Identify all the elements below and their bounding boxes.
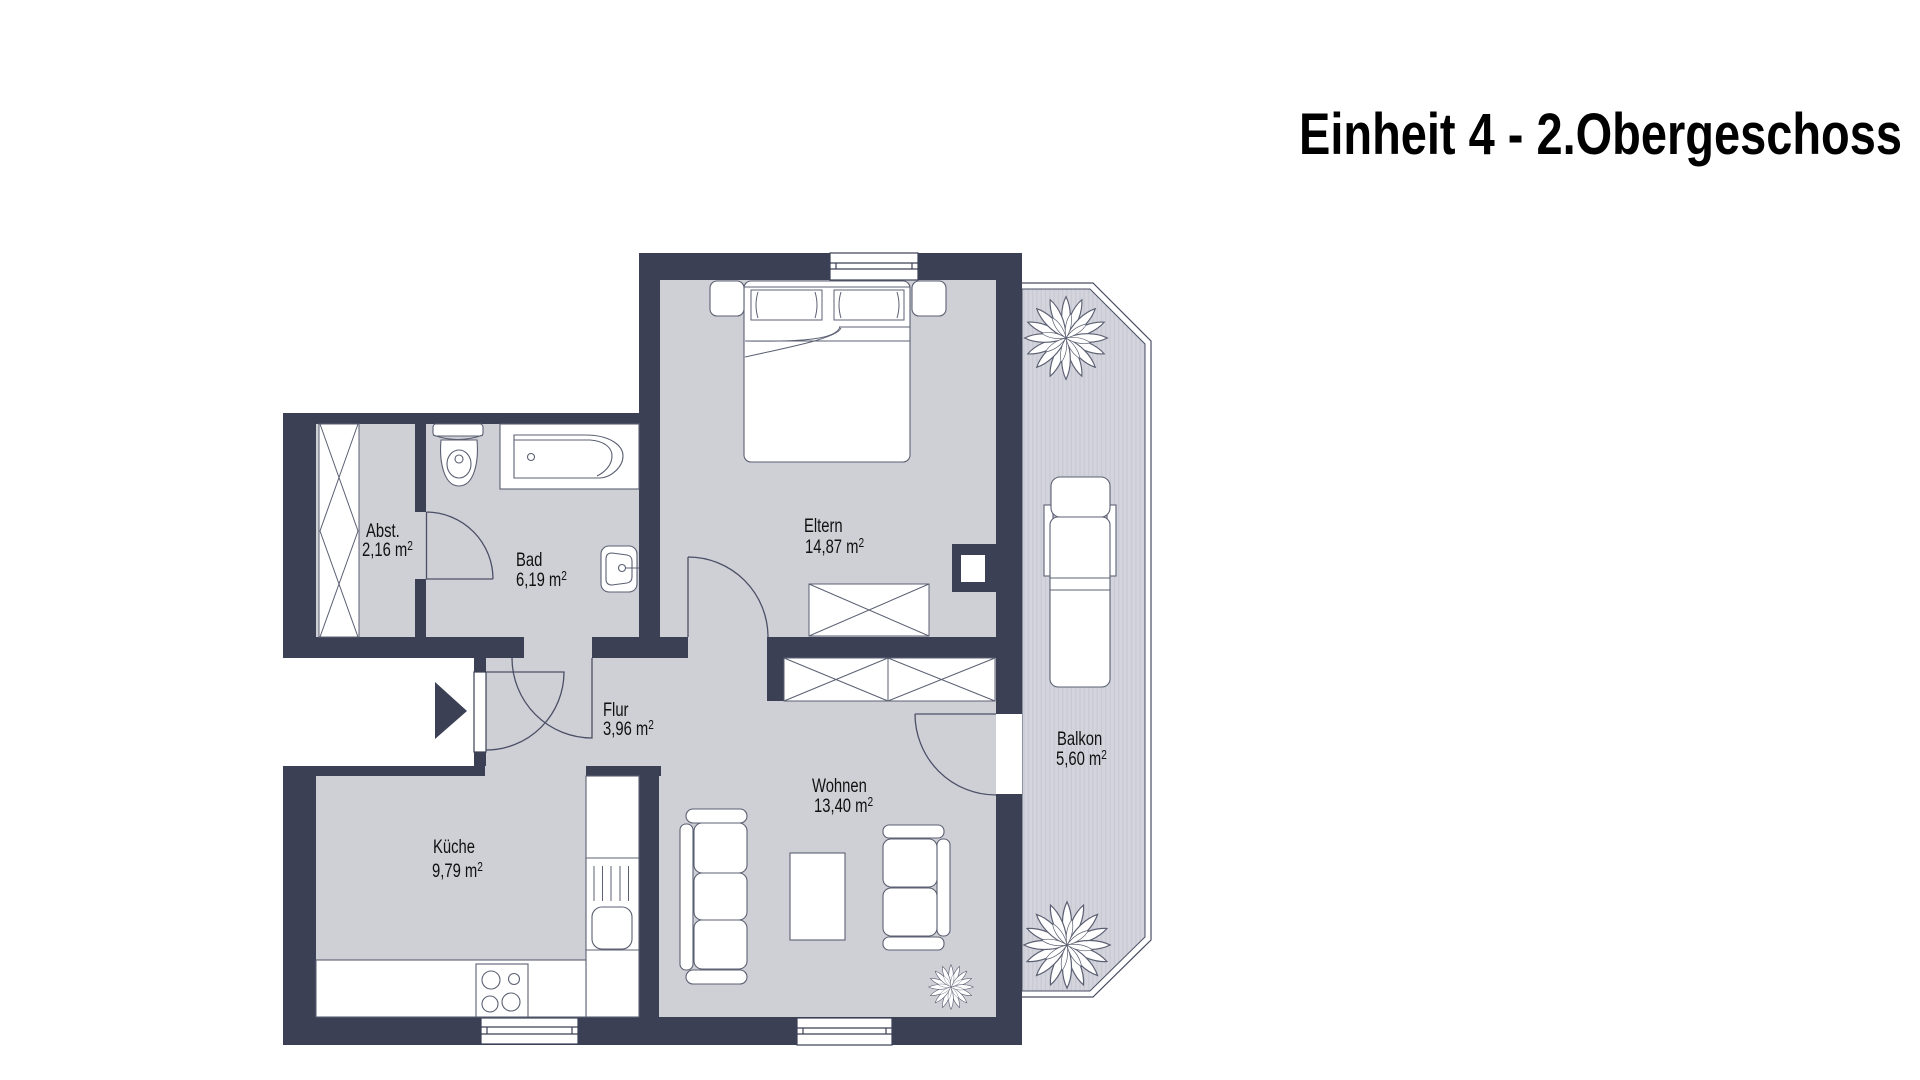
svg-text:3,96 m2: 3,96 m2 <box>603 718 654 740</box>
svg-text:Bad: Bad <box>516 549 542 570</box>
svg-text:Küche: Küche <box>433 836 475 857</box>
svg-text:14,87 m2: 14,87 m2 <box>805 536 864 558</box>
svg-text:Wohnen: Wohnen <box>812 775 867 796</box>
svg-text:9,79 m2: 9,79 m2 <box>432 860 483 882</box>
svg-text:6,19 m2: 6,19 m2 <box>516 569 567 591</box>
svg-text:Balkon: Balkon <box>1057 728 1102 749</box>
svg-text:13,40 m2: 13,40 m2 <box>814 795 873 817</box>
svg-text:5,60 m2: 5,60 m2 <box>1056 748 1107 770</box>
svg-text:Einheit 4 - 2.Obergeschoss: Einheit 4 - 2.Obergeschoss <box>1299 102 1902 167</box>
svg-text:Eltern: Eltern <box>804 515 843 536</box>
svg-text:2,16 m2: 2,16 m2 <box>362 539 413 561</box>
